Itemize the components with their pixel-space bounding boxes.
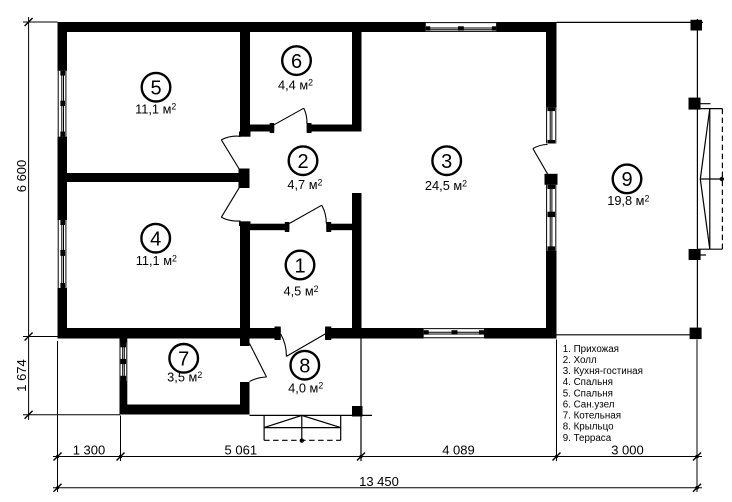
- svg-text:4 089: 4 089: [442, 443, 475, 458]
- svg-text:6. Сан.узел: 6. Сан.узел: [563, 399, 615, 410]
- svg-text:1. Прихожая: 1. Прихожая: [563, 344, 619, 355]
- svg-text:9: 9: [621, 169, 632, 191]
- svg-text:1 300: 1 300: [73, 443, 106, 458]
- svg-text:11,1 м2: 11,1 м2: [136, 253, 177, 268]
- svg-text:24,5 м2: 24,5 м2: [425, 178, 467, 193]
- svg-text:3,5 м2: 3,5 м2: [167, 369, 202, 384]
- svg-text:3. Кухня-гостиная: 3. Кухня-гостиная: [563, 366, 643, 377]
- svg-text:4,5 м2: 4,5 м2: [283, 284, 318, 299]
- svg-text:19,8 м2: 19,8 м2: [607, 193, 649, 208]
- svg-text:2. Холл: 2. Холл: [563, 355, 597, 366]
- svg-text:11,1 м2: 11,1 м2: [135, 101, 176, 116]
- svg-text:13 450: 13 450: [359, 474, 399, 489]
- svg-text:4: 4: [150, 229, 161, 251]
- svg-text:7. Котельная: 7. Котельная: [563, 411, 621, 422]
- svg-text:9. Терраса: 9. Терраса: [563, 433, 612, 444]
- svg-text:2: 2: [297, 151, 308, 173]
- svg-text:5. Спальня: 5. Спальня: [563, 388, 613, 399]
- svg-text:4,7 м2: 4,7 м2: [287, 177, 322, 192]
- svg-text:4,0 м2: 4,0 м2: [288, 380, 323, 395]
- svg-text:6 600: 6 600: [14, 160, 29, 193]
- svg-text:3: 3: [441, 151, 452, 173]
- svg-text:7: 7: [178, 349, 189, 371]
- svg-text:4. Спальня: 4. Спальня: [563, 377, 613, 388]
- svg-text:1 674: 1 674: [14, 359, 29, 392]
- svg-text:4,4 м2: 4,4 м2: [278, 77, 313, 92]
- svg-text:6: 6: [291, 51, 302, 73]
- svg-text:8. Крыльцо: 8. Крыльцо: [563, 422, 614, 433]
- svg-text:8: 8: [299, 356, 310, 378]
- svg-text:5 061: 5 061: [225, 443, 258, 458]
- svg-text:1: 1: [294, 255, 305, 277]
- svg-text:5: 5: [150, 78, 161, 100]
- svg-text:3 000: 3 000: [611, 443, 644, 458]
